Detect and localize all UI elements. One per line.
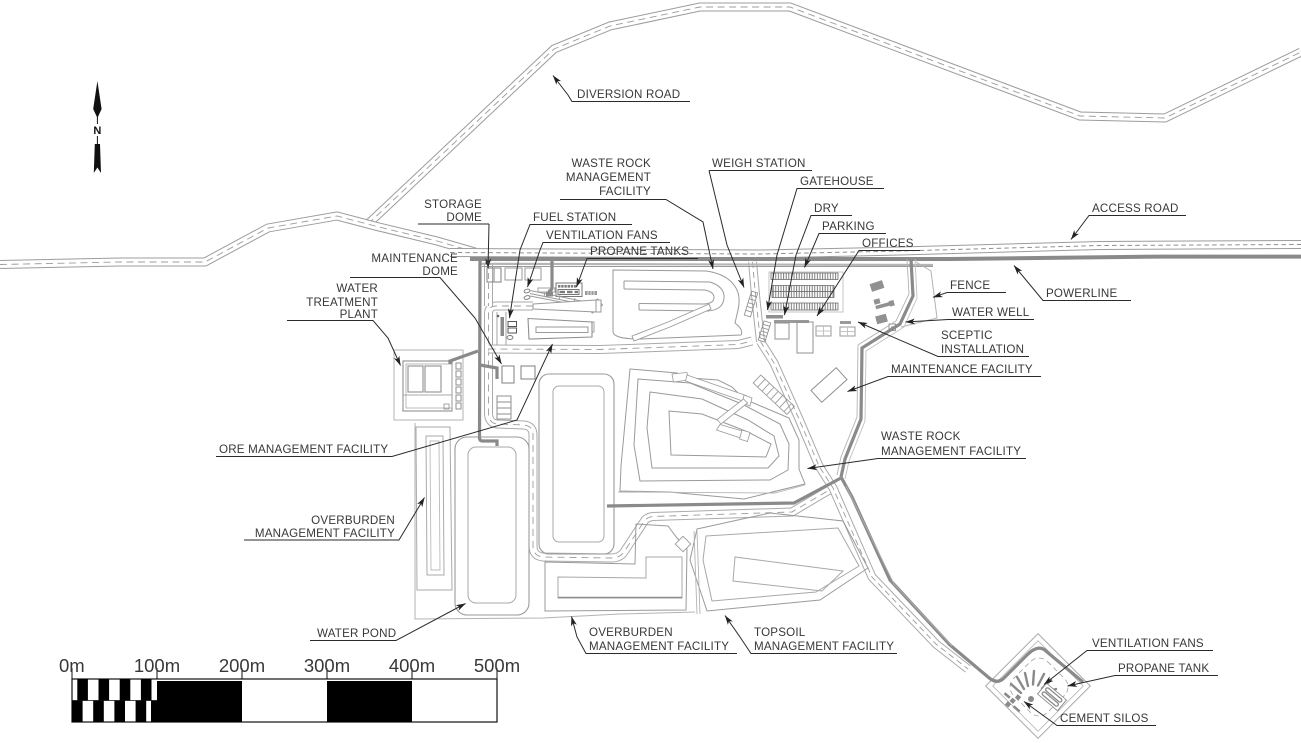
svg-text:500m: 500m: [474, 655, 520, 676]
svg-text:PLANT: PLANT: [340, 308, 378, 321]
svg-text:WASTE ROCK: WASTE ROCK: [571, 157, 651, 170]
svg-text:PROPANE TANKS: PROPANE TANKS: [590, 245, 689, 258]
svg-text:WEIGH STATION: WEIGH STATION: [712, 157, 806, 170]
svg-text:STORAGE: STORAGE: [424, 198, 482, 211]
svg-text:MANAGEMENT FACILITY: MANAGEMENT FACILITY: [881, 445, 1021, 458]
svg-text:FUEL STATION: FUEL STATION: [533, 211, 616, 224]
svg-text:400m: 400m: [389, 655, 435, 676]
svg-text:PROPANE TANK: PROPANE TANK: [1118, 662, 1209, 675]
svg-text:OFFICES: OFFICES: [862, 237, 914, 250]
svg-text:200m: 200m: [219, 655, 265, 676]
svg-text:ORE MANAGEMENT FACILITY: ORE MANAGEMENT FACILITY: [219, 443, 388, 456]
svg-text:WATER: WATER: [336, 282, 378, 295]
svg-text:DOME: DOME: [422, 265, 458, 278]
svg-text:FENCE: FENCE: [950, 279, 990, 292]
svg-text:MANAGEMENT FACILITY: MANAGEMENT FACILITY: [255, 527, 395, 540]
svg-text:MANAGEMENT: MANAGEMENT: [566, 171, 651, 184]
svg-text:ACCESS ROAD: ACCESS ROAD: [1092, 202, 1179, 215]
svg-text:CEMENT SILOS: CEMENT SILOS: [1060, 712, 1149, 725]
svg-text:0m: 0m: [59, 655, 85, 676]
svg-text:PARKING: PARKING: [822, 220, 875, 233]
svg-text:TOPSOIL: TOPSOIL: [754, 626, 806, 639]
svg-text:SCEPTIC: SCEPTIC: [941, 329, 993, 342]
svg-text:DRY: DRY: [814, 202, 839, 215]
svg-text:OVERBURDEN: OVERBURDEN: [311, 514, 395, 527]
svg-text:DIVERSION ROAD: DIVERSION ROAD: [577, 88, 680, 101]
svg-text:WATER WELL: WATER WELL: [952, 306, 1030, 319]
svg-text:WATER POND: WATER POND: [317, 627, 396, 640]
svg-text:VENTILATION FANS: VENTILATION FANS: [546, 229, 658, 242]
svg-text:POWERLINE: POWERLINE: [1046, 287, 1117, 300]
svg-text:DOME: DOME: [446, 211, 482, 224]
svg-text:MAINTENANCE FACILITY: MAINTENANCE FACILITY: [891, 363, 1033, 376]
svg-text:MANAGEMENT FACILITY: MANAGEMENT FACILITY: [754, 640, 894, 653]
svg-text:WASTE ROCK: WASTE ROCK: [881, 430, 961, 443]
svg-text:100m: 100m: [134, 655, 180, 676]
svg-text:GATEHOUSE: GATEHOUSE: [800, 175, 874, 188]
svg-text:OVERBURDEN: OVERBURDEN: [589, 626, 673, 639]
svg-text:INSTALLATION: INSTALLATION: [941, 343, 1024, 356]
svg-text:N: N: [93, 125, 101, 137]
svg-text:VENTILATION FANS: VENTILATION FANS: [1092, 637, 1204, 650]
svg-text:FACILITY: FACILITY: [599, 185, 651, 198]
svg-text:MAINTENANCE: MAINTENANCE: [371, 252, 458, 265]
svg-text:300m: 300m: [304, 655, 350, 676]
svg-text:MANAGEMENT FACILITY: MANAGEMENT FACILITY: [589, 640, 729, 653]
